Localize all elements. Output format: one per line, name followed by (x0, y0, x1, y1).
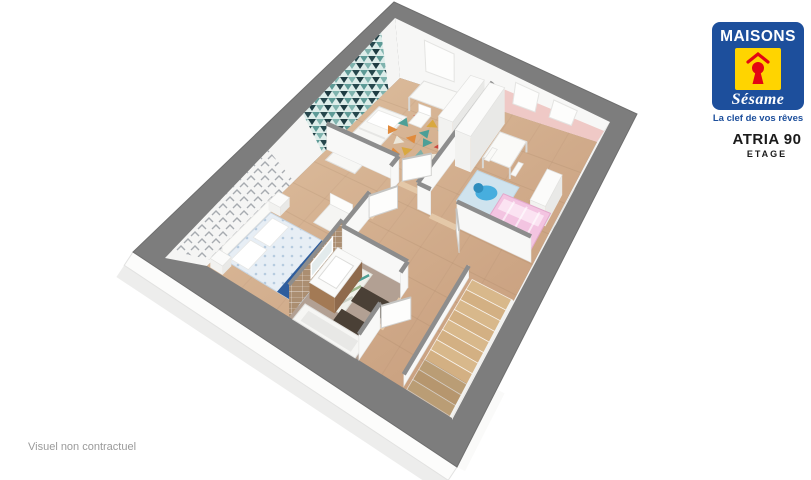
page: MAISONS Sésame La clef de vos rêves ATRI… (0, 0, 811, 480)
furniture-front (455, 130, 471, 172)
brand-script-name: Sésame (712, 91, 804, 109)
brand-name: MAISONS (712, 28, 804, 46)
brand-tagline: La clef de vos rêves (690, 113, 811, 124)
brand-logo: MAISONS Sésame (712, 22, 804, 110)
disclaimer-text: Visuel non contractuel (28, 441, 136, 453)
plan-level-label: ETAGE (707, 149, 811, 159)
keyhole-icon (712, 48, 804, 90)
floor-plan-3d (0, 0, 811, 480)
plan-model-name: ATRIA 90 (707, 131, 811, 148)
toy-head (473, 183, 483, 193)
